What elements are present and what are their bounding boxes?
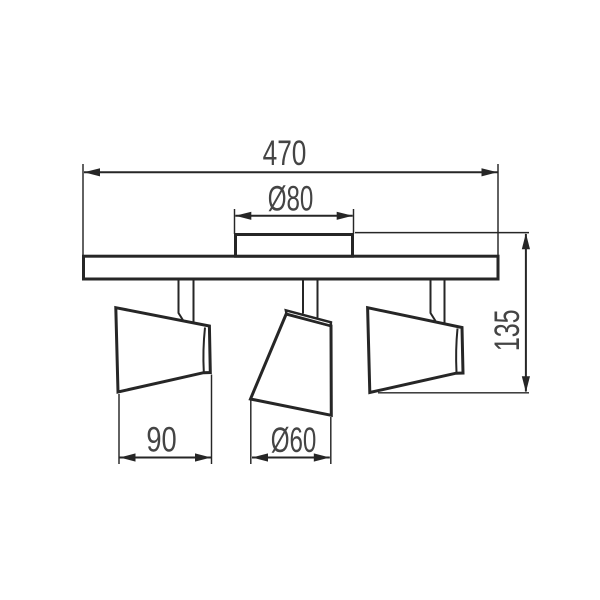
svg-text:Ø60: Ø60 [271,422,317,460]
svg-text:470: 470 [263,133,307,173]
svg-text:Ø80: Ø80 [268,180,314,218]
svg-text:90: 90 [146,420,176,459]
svg-text:135: 135 [488,309,527,351]
